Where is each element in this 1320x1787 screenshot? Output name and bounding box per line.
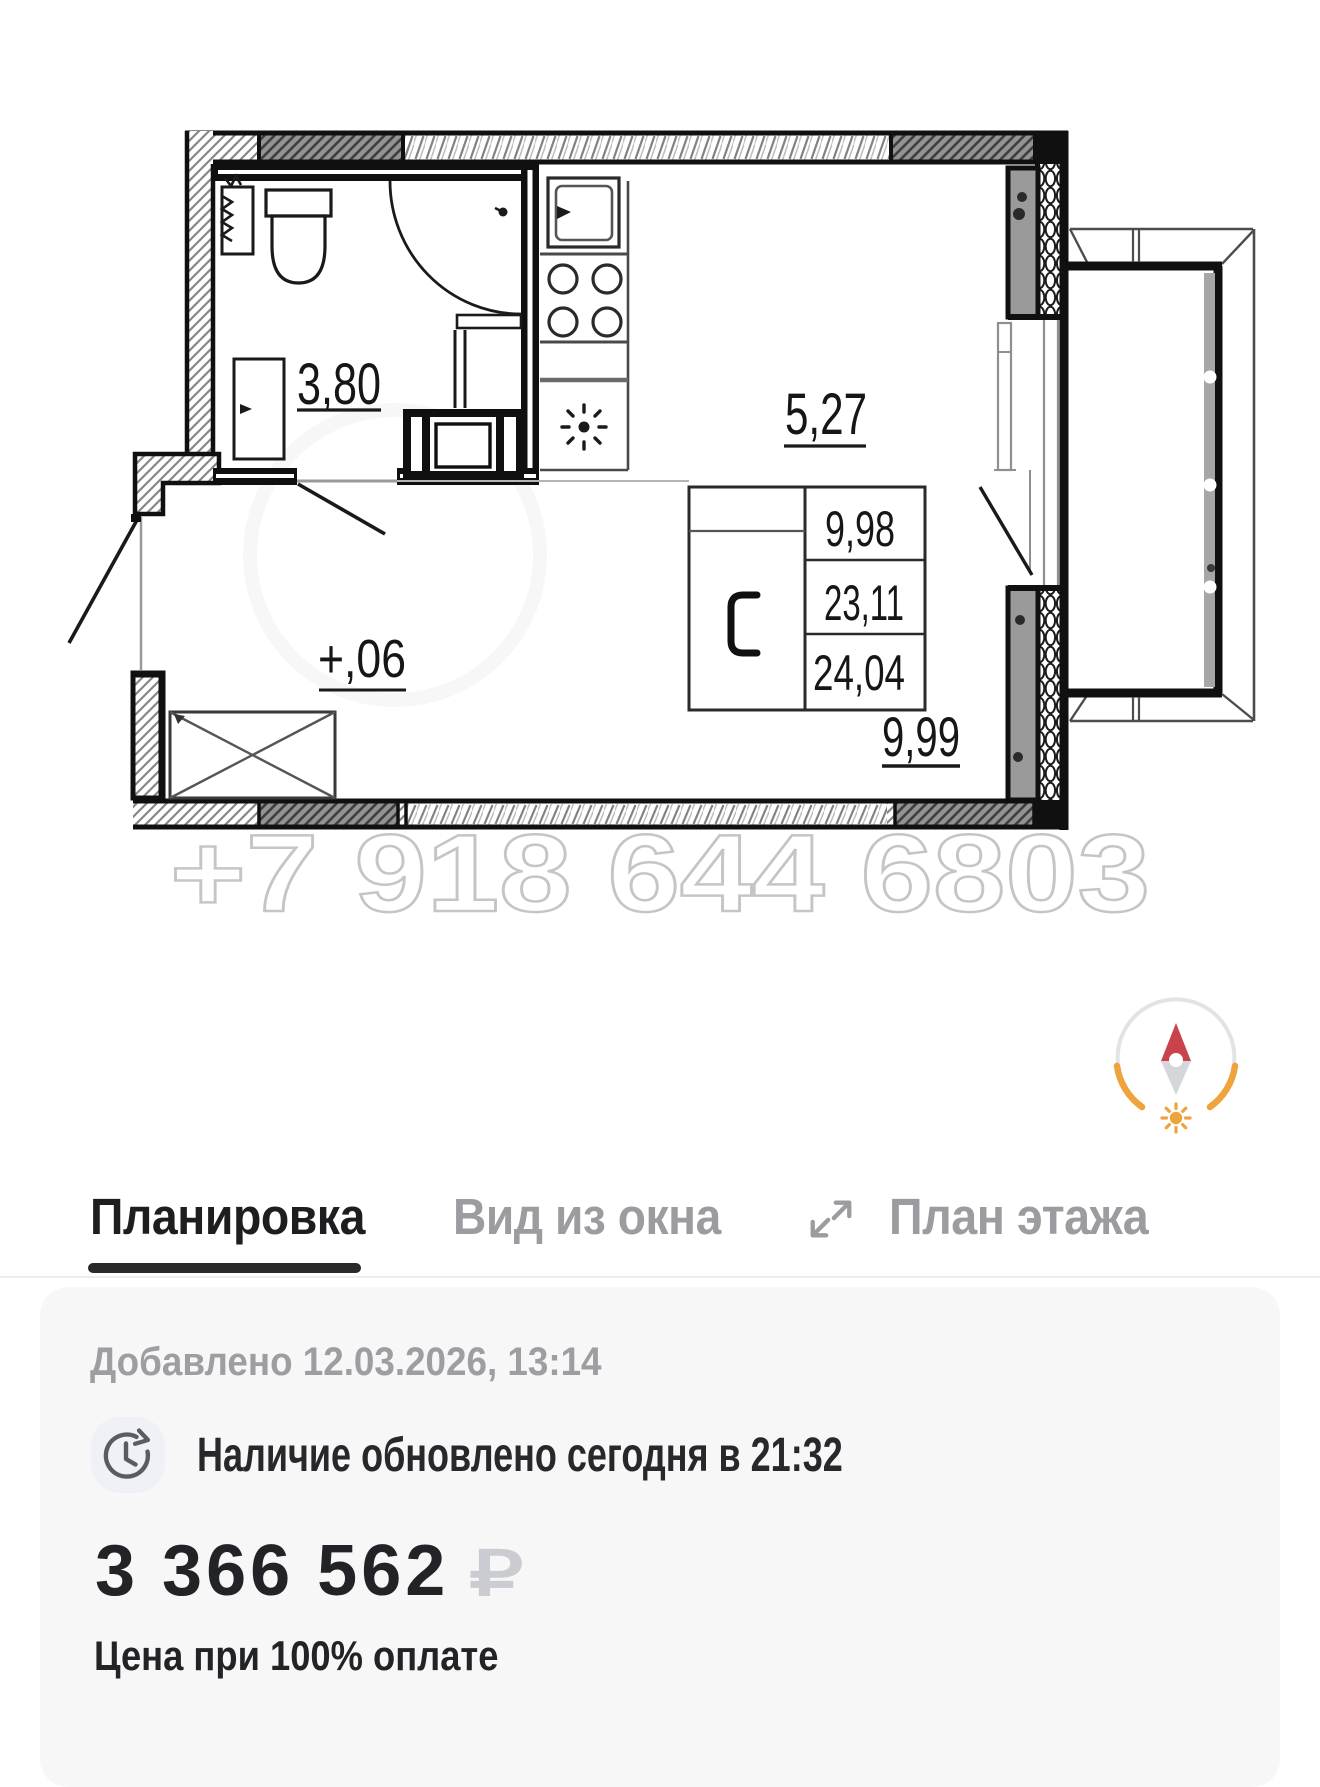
svg-text:+7 918 644 6803: +7 918 644 6803 [170,812,1150,935]
svg-text:5,27: 5,27 [785,382,867,447]
svg-text:9,98: 9,98 [825,501,895,557]
svg-text:9,99: 9,99 [882,705,960,768]
svg-text:+,06: +,06 [318,629,406,689]
svg-text:3,80: 3,80 [297,352,381,417]
svg-text:24,04: 24,04 [813,645,905,701]
svg-text:23,11: 23,11 [824,575,904,631]
